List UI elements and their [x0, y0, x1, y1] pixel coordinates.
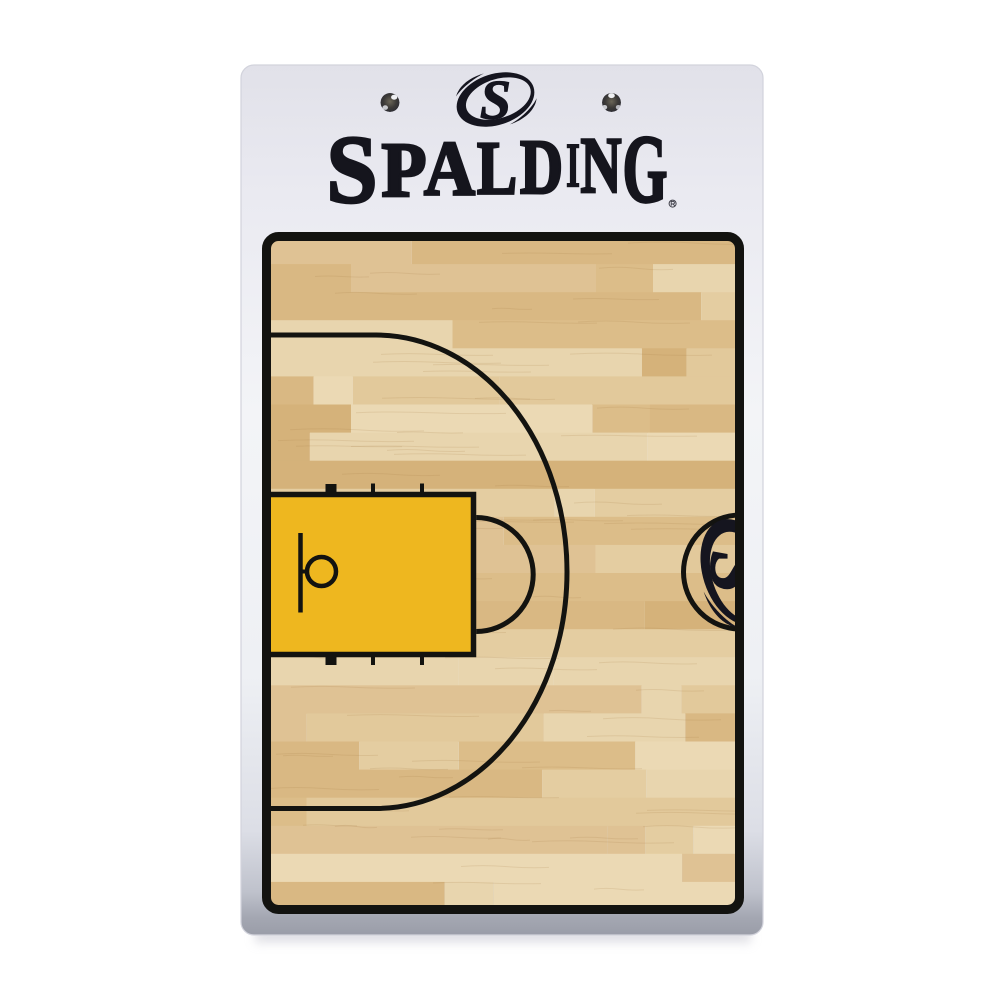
- svg-text:P: P: [382, 126, 427, 213]
- svg-text:N: N: [581, 122, 622, 210]
- svg-text:A: A: [424, 125, 475, 212]
- svg-text:G: G: [623, 116, 668, 223]
- svg-text:S: S: [327, 116, 378, 223]
- svg-text:D: D: [520, 123, 563, 210]
- svg-text:L: L: [477, 127, 517, 211]
- svg-text:S: S: [480, 70, 511, 132]
